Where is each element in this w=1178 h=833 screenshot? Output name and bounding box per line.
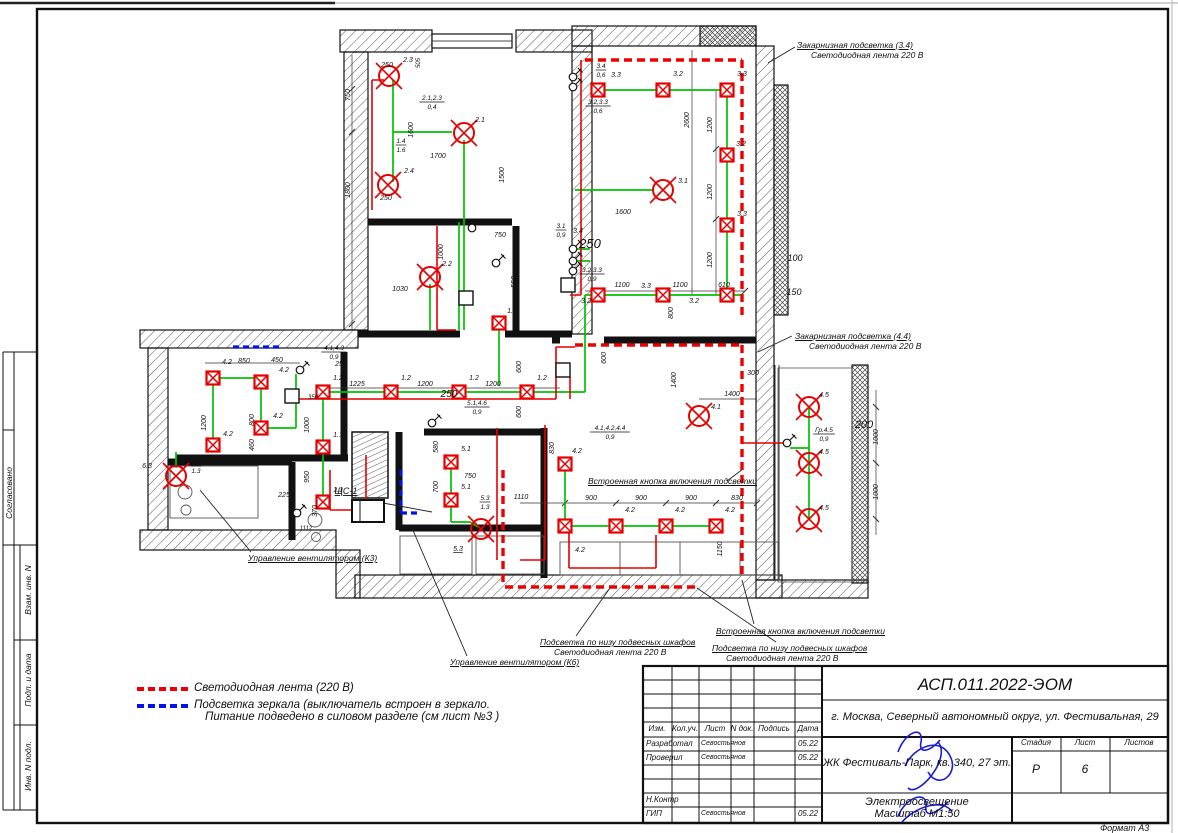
col-podpis: Подпись — [758, 724, 790, 733]
annotation-note: Закарнизная подсветка (4.4)Светодиодная … — [795, 331, 921, 351]
stage-label: Стадия — [1021, 738, 1051, 747]
annotation-note: Подсветка по низу подвесных шкафовСветод… — [712, 643, 867, 663]
col-koluch: Кол.уч. — [672, 724, 698, 733]
row-date: 05.22 — [798, 739, 818, 748]
sheets-label: Листов — [1124, 738, 1153, 747]
project-address: г. Москва, Северный автономный округ, ул… — [831, 711, 1158, 723]
row-role: ГИП — [646, 809, 662, 818]
legend-led-strip: Светодиодная лента (220 В) — [194, 682, 354, 694]
annotation-note: Встроенная кнопка включения подсветки — [716, 626, 885, 636]
row-date: 05.22 — [798, 809, 818, 818]
legend-mirror-light-1: Подсветка зеркала (выключатель встроен в… — [194, 699, 490, 711]
row-name: Севостьянов — [701, 740, 746, 747]
row-date: 05.22 — [798, 753, 818, 762]
row-role: Разработал — [646, 739, 693, 748]
row-name: Севостьянов — [701, 810, 746, 817]
col-list: Лист — [705, 724, 726, 733]
annotation-note: Подсветка по низу подвесных шкафовСветод… — [540, 637, 695, 657]
drawing-sheet: 7502502.3505180016002.1170015002.42502.2… — [0, 0, 1178, 833]
stamp-label-soglasovano: Согласовано — [4, 433, 14, 553]
plan-annotations-layer: Закарнизная подсветка (3.4)Светодиодная … — [0, 0, 1178, 833]
col-izm: Изм. — [648, 724, 665, 733]
doc-number: АСП.011.2022-ЭОМ — [918, 675, 1072, 695]
format-label: Формат А3 — [1100, 823, 1149, 833]
row-role: Проверил — [646, 753, 683, 762]
col-data: Дата — [797, 724, 818, 733]
sheet-label: Лист — [1075, 738, 1096, 747]
stamp-label-inv-podl: Инв. N подл. — [23, 706, 33, 826]
row-role: Н.Контр — [646, 795, 679, 804]
col-ndok: N док. — [731, 724, 754, 733]
stage-value: Р — [1032, 762, 1040, 776]
annotation-note: Встроенная кнопка включения подсветки — [588, 476, 757, 486]
sheet-title-2: Масштаб М1:50 — [874, 808, 959, 820]
legend-mirror-light-2: Питание подведено в силовом разделе (см … — [205, 711, 499, 723]
annotation-note: Управление вентилятором (К3) — [248, 553, 377, 563]
row-name: Севостьянов — [701, 754, 746, 761]
sheet-value: 6 — [1082, 762, 1089, 776]
sheet-title-1: Электроосвещение — [865, 796, 969, 808]
annotation-note: Управление вентилятором (К6) — [450, 657, 579, 667]
annotation-note: Закарнизная подсветка (3.4)Светодиодная … — [797, 40, 923, 60]
object-name: ЖК Фестиваль-Парк, кв. 340, 27 эт. — [823, 757, 1011, 769]
